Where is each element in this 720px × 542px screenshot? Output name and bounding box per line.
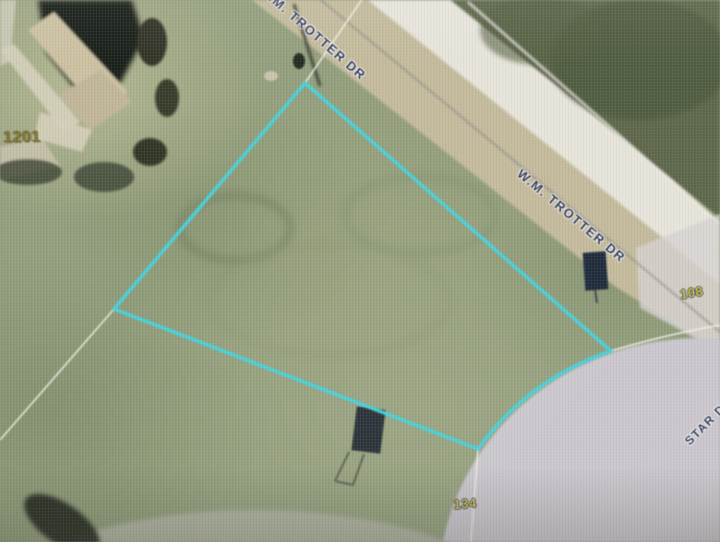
house-1201 — [0, 0, 179, 192]
bush — [293, 53, 305, 69]
aerial-imagery: W.M. TROTTER DR W.M. TROTTER DR STAR DR … — [0, 0, 720, 542]
basketball-goal-legs — [335, 452, 364, 485]
tree-canopy — [133, 138, 167, 166]
car-shadow — [14, 482, 109, 542]
tree-canopy — [137, 18, 167, 66]
lawn-mowing-marks — [180, 177, 495, 355]
map-canvas[interactable]: W.M. TROTTER DR W.M. TROTTER DR STAR DR … — [0, 0, 720, 542]
lot-number-134: 134 — [453, 495, 477, 512]
tree-canopy — [155, 79, 179, 117]
boundary-line — [0, 309, 114, 440]
basketball-goal-shadow — [351, 406, 385, 453]
sign-shadow — [583, 251, 609, 291]
sign-post — [595, 290, 597, 303]
shrub-row — [74, 162, 134, 192]
rock — [264, 71, 278, 81]
culdesac-pavement — [438, 338, 720, 542]
road-wm-trotter-dr — [252, 0, 720, 352]
house-number-1201: 1201 — [3, 128, 41, 147]
